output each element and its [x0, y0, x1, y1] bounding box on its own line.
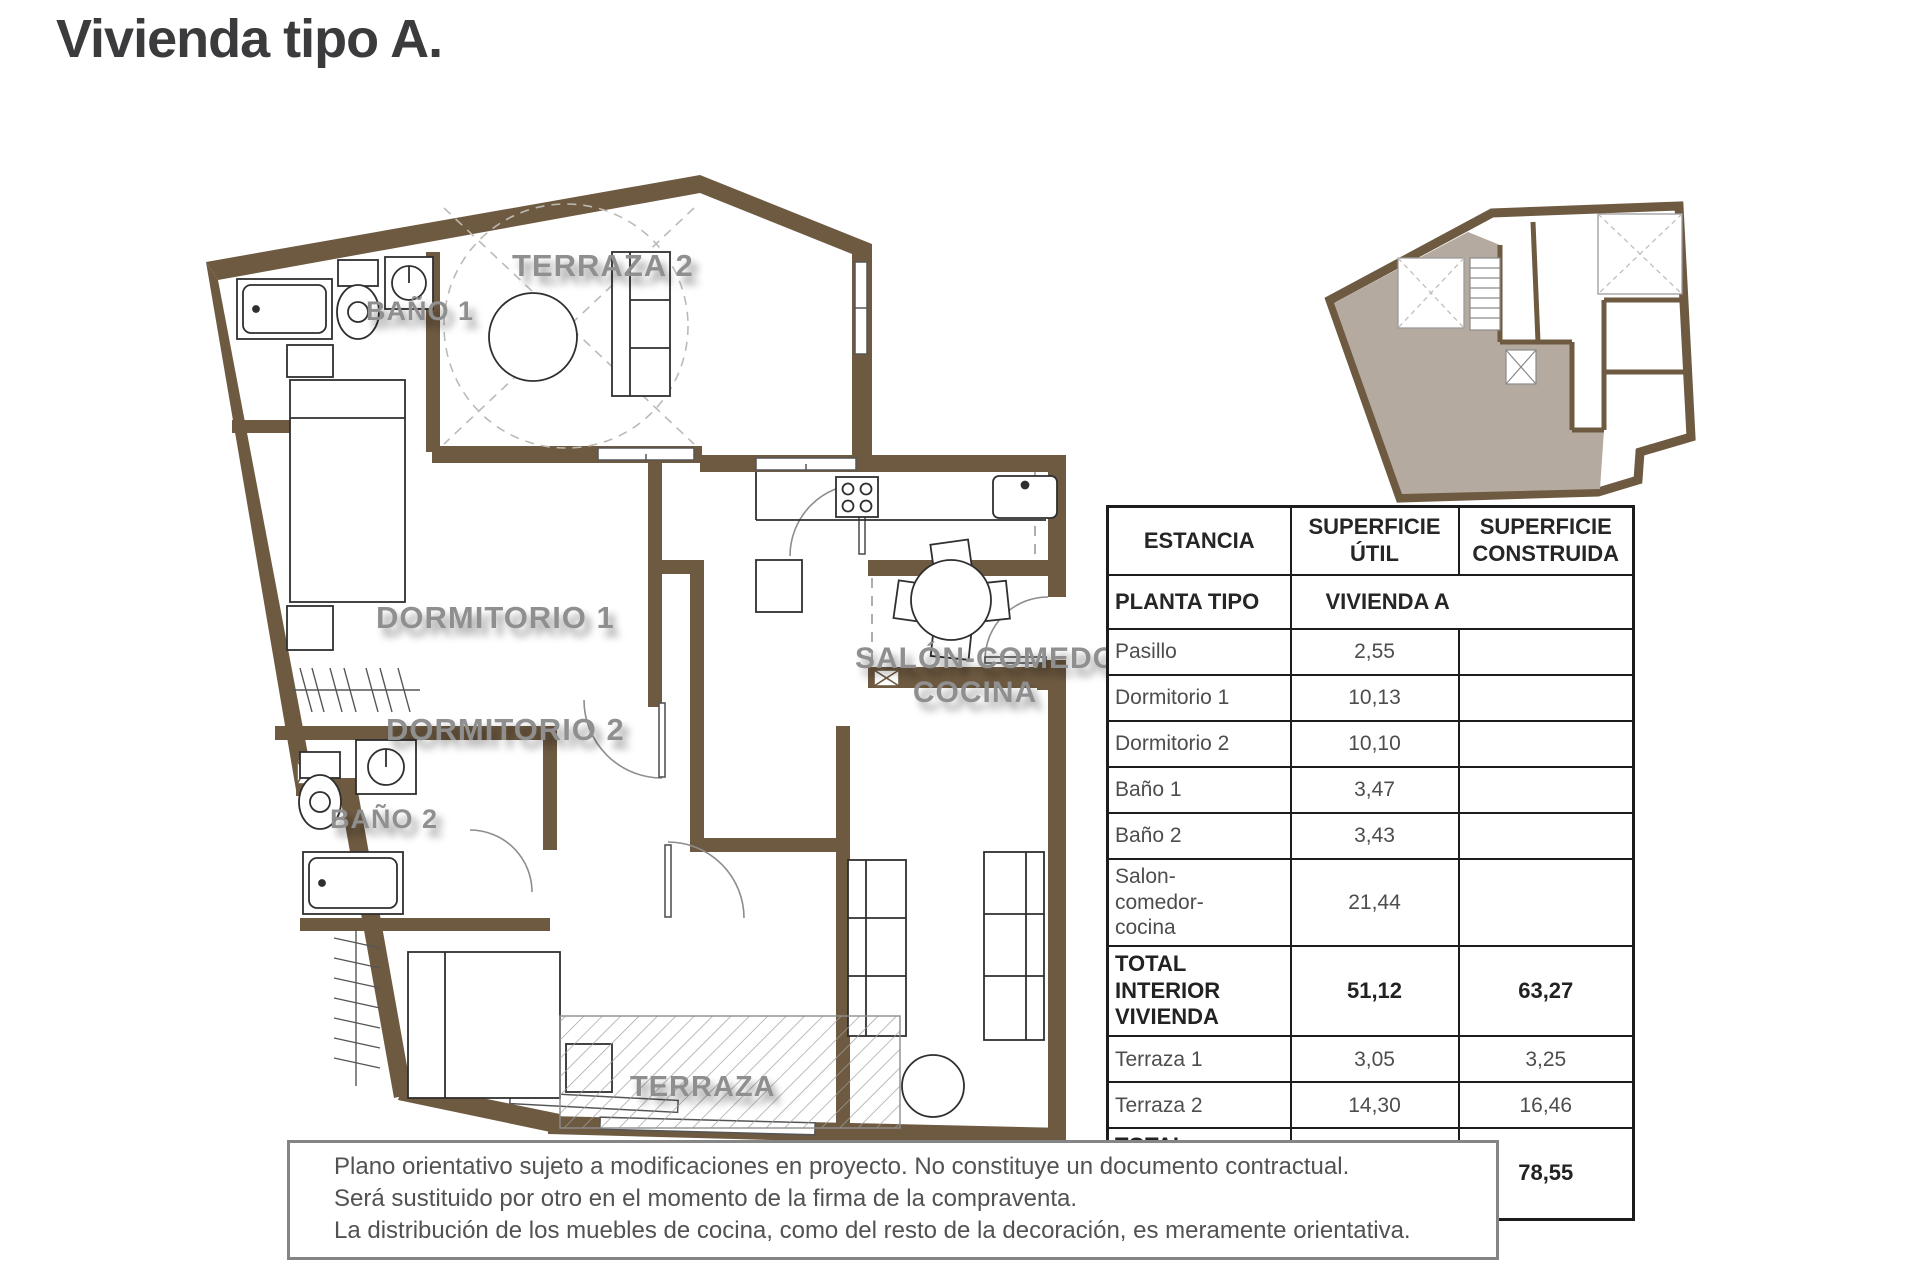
terrace-table-icon [489, 293, 577, 381]
label-salon-line1: SALÓN-COMEDOR [855, 641, 1140, 675]
cell-superficie-util: 21,44 [1291, 859, 1459, 946]
label-bano1: BAÑO 1 [366, 295, 474, 326]
area-table-body: ESTANCIA SUPERFICIE ÚTIL SUPERFICIE CONS… [1108, 507, 1634, 1220]
building-key-plan [1330, 206, 1691, 498]
cell-estancia: Dormitorio 2 [1108, 721, 1291, 767]
label-bano2: BAÑO 2 [330, 803, 438, 834]
stove-icon [836, 477, 878, 517]
table-row: Terraza 13,053,25 [1108, 1036, 1634, 1082]
table-row: Baño 13,47 [1108, 767, 1634, 813]
bathtub-icon [237, 279, 332, 339]
cell-superficie-construida [1459, 813, 1634, 859]
cell-superficie-construida [1459, 721, 1634, 767]
table-row: Salon- comedor- cocina21,44 [1108, 859, 1634, 946]
sofa-icon [848, 860, 906, 1036]
header-superficie-util: SUPERFICIE ÚTIL [1291, 507, 1459, 576]
vivienda-a-cell: VIVIENDA A [1291, 575, 1634, 629]
cell-superficie-construida: 3,25 [1459, 1036, 1634, 1082]
terrace-round-table-icon [902, 1055, 964, 1117]
cell-estancia: Terraza 2 [1108, 1082, 1291, 1128]
kitchen-sink-icon [993, 476, 1057, 518]
cell-superficie-util: 14,30 [1291, 1082, 1459, 1128]
header-estancia: ESTANCIA [1108, 507, 1291, 576]
label-terraza2: TERRAZA 2 [512, 248, 694, 283]
label-terraza: TERRAZA [630, 1071, 776, 1103]
cell-superficie-construida: 63,27 [1459, 946, 1634, 1036]
label-dormitorio1: DORMITORIO 1 [376, 600, 615, 635]
cell-estancia: Dormitorio 1 [1108, 675, 1291, 721]
cell-estancia: Terraza 1 [1108, 1036, 1291, 1082]
table-row: Dormitorio 110,13 [1108, 675, 1634, 721]
cell-superficie-util: 3,43 [1291, 813, 1459, 859]
windows [510, 262, 867, 1135]
cell-superficie-construida [1459, 859, 1634, 946]
cell-superficie-construida [1459, 629, 1634, 675]
cell-estancia: Pasillo [1108, 629, 1291, 675]
table-header-row: ESTANCIA SUPERFICIE ÚTIL SUPERFICIE CONS… [1108, 507, 1634, 576]
cell-estancia: TOTAL INTERIOR VIVIENDA [1108, 946, 1291, 1036]
sofa-icon [984, 852, 1044, 1040]
table-subheader-row: PLANTA TIPO VIVIENDA A [1108, 575, 1634, 629]
cell-superficie-util: 10,10 [1291, 721, 1459, 767]
page-title: Vivienda tipo A. [56, 8, 442, 70]
disclaimer-line: La distribución de los muebles de cocina… [334, 1215, 1486, 1247]
disclaimer-box: Plano orientativo sujeto a modificacione… [287, 1140, 1499, 1260]
cell-superficie-construida: 16,46 [1459, 1082, 1634, 1128]
cell-superficie-util: 3,05 [1291, 1036, 1459, 1082]
wardrobe-icon [292, 668, 420, 712]
table-row: TOTAL INTERIOR VIVIENDA51,1263,27 [1108, 946, 1634, 1036]
cell-estancia: Salon- comedor- cocina [1108, 859, 1291, 946]
table-row: Terraza 214,3016,46 [1108, 1082, 1634, 1128]
sink-icon [356, 740, 416, 794]
keyplan-elevator-icon [1506, 350, 1536, 384]
cell-estancia: Baño 2 [1108, 813, 1291, 859]
cell-superficie-util: 2,55 [1291, 629, 1459, 675]
cell-superficie-util: 10,13 [1291, 675, 1459, 721]
disclaimer-line: Será sustituido por otro en el momento d… [334, 1183, 1486, 1215]
area-table: ESTANCIA SUPERFICIE ÚTIL SUPERFICIE CONS… [1106, 505, 1635, 1221]
header-superficie-construida: SUPERFICIE CONSTRUIDA [1459, 507, 1634, 576]
table-row: Dormitorio 210,10 [1108, 721, 1634, 767]
table-row: Pasillo2,55 [1108, 629, 1634, 675]
cell-superficie-construida [1459, 767, 1634, 813]
cell-superficie-util: 3,47 [1291, 767, 1459, 813]
label-salon-line2: COCINA [913, 676, 1037, 709]
cell-estancia: Baño 1 [1108, 767, 1291, 813]
cell-superficie-util: 51,12 [1291, 946, 1459, 1036]
interior-door-icon [665, 842, 744, 918]
planta-tipo-cell: PLANTA TIPO [1108, 575, 1291, 629]
bathtub-icon [303, 852, 403, 914]
label-dormitorio2: DORMITORIO 2 [386, 712, 625, 747]
table-row: Baño 23,43 [1108, 813, 1634, 859]
cell-superficie-construida [1459, 675, 1634, 721]
floorplan-page: { "page": { "title": "Vivienda tipo A." … [0, 0, 1920, 1280]
interior-door-icon [470, 830, 532, 892]
keyplan-stairs-icon [1470, 258, 1500, 330]
disclaimer-line: Plano orientativo sujeto a modificacione… [334, 1151, 1486, 1183]
